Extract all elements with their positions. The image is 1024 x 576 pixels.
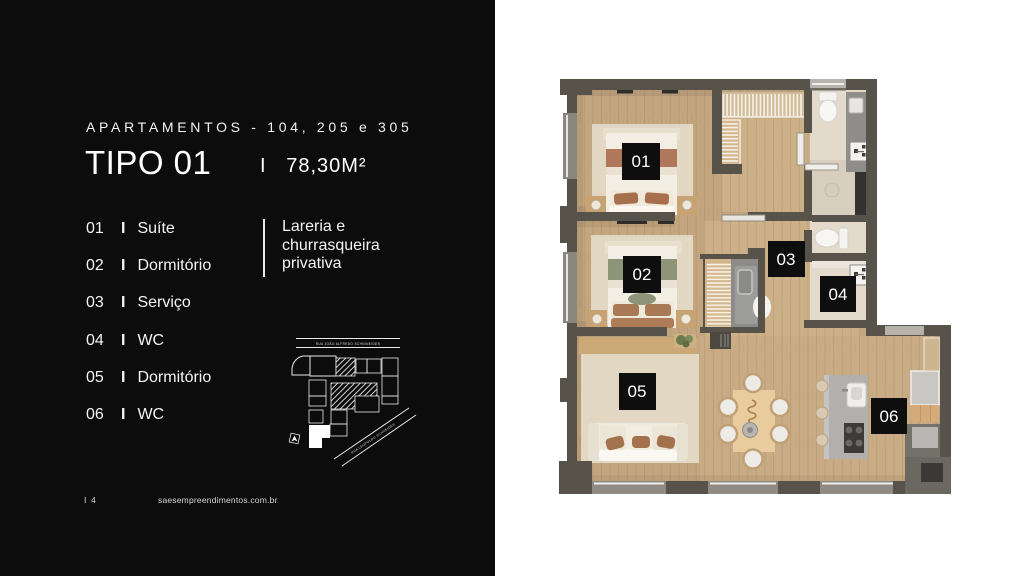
svg-text:04: 04 [829, 285, 848, 304]
svg-text:01: 01 [632, 152, 651, 171]
svg-text:06: 06 [880, 407, 899, 426]
svg-text:03: 03 [777, 250, 796, 269]
svg-text:02: 02 [633, 265, 652, 284]
svg-text:05: 05 [628, 382, 647, 401]
